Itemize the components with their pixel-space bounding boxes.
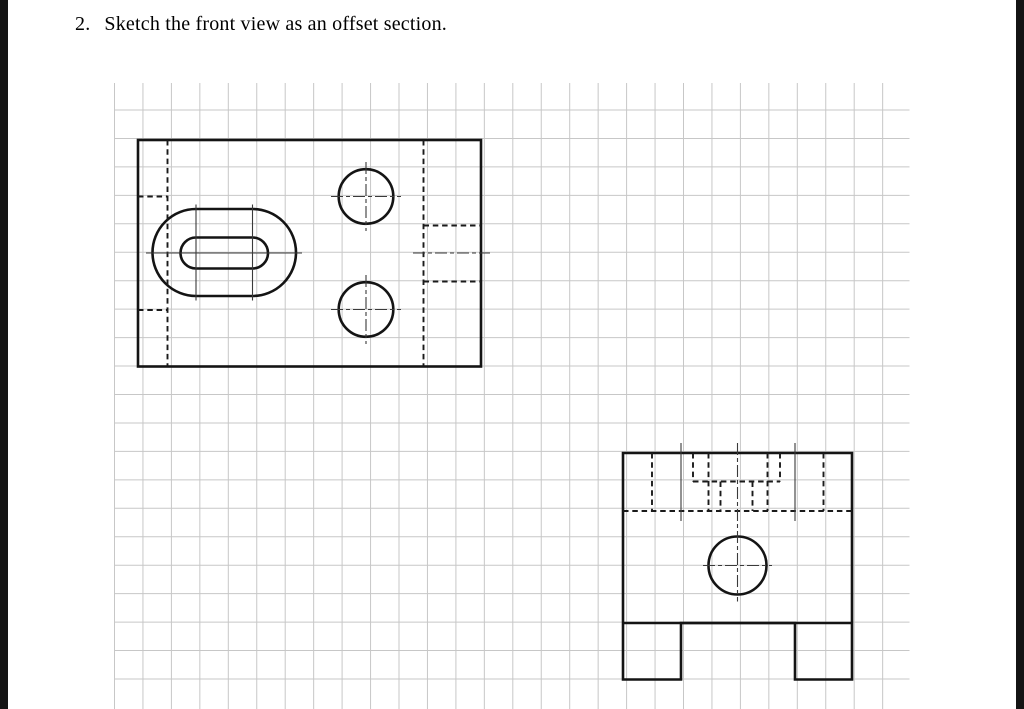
grid: [115, 83, 910, 709]
drawing-canvas: [0, 0, 1024, 709]
side-view-outline: [623, 453, 852, 680]
side-view: [623, 443, 852, 680]
